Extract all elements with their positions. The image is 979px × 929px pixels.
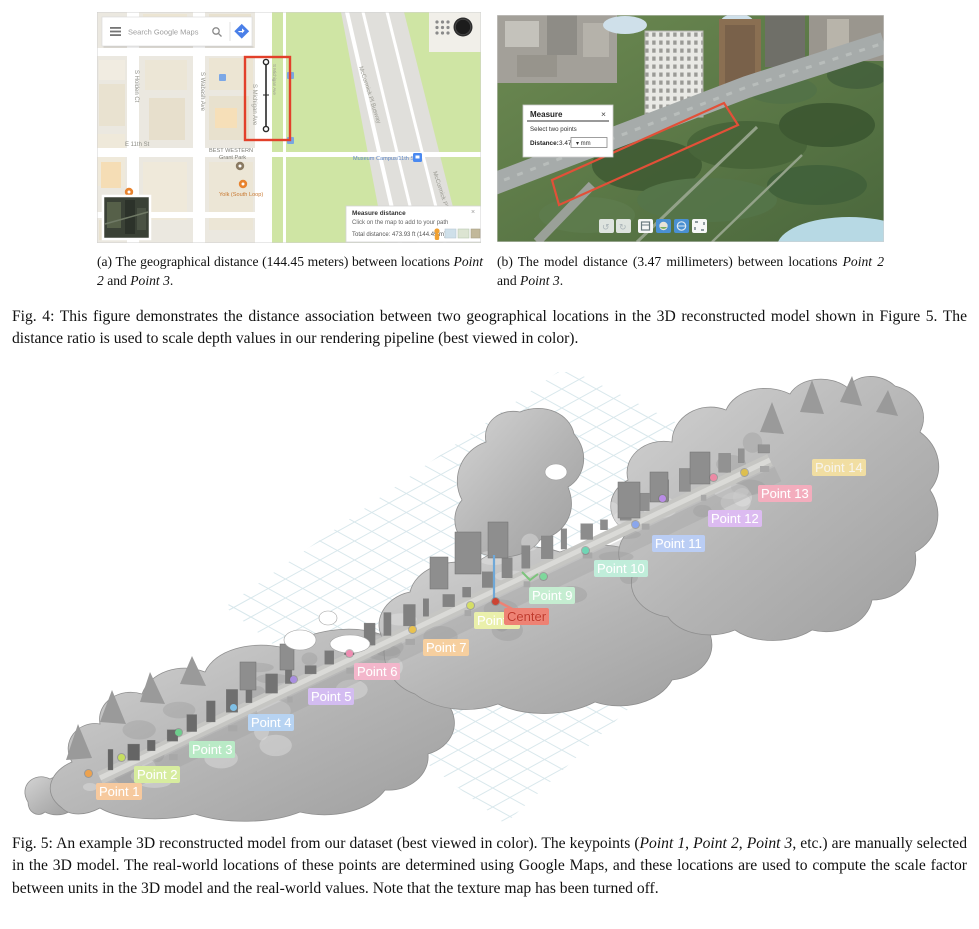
keypoint-dot-point-5 — [290, 676, 297, 683]
measure-dialog: Measure × Select two points Distance: 3.… — [523, 105, 613, 157]
model-viewport: Point 1Point 2Point 3Point 4Point 5Point… — [0, 372, 979, 824]
measure-endpoint-top — [263, 59, 268, 64]
fig4b-model-image: Measure × Select two points Distance: 3.… — [497, 15, 884, 242]
keypoint-dot-point-6 — [346, 650, 353, 657]
hamburger-menu-icon[interactable] — [110, 27, 121, 36]
fig4-caption: Fig. 4: This figure demonstrates the dis… — [12, 306, 967, 351]
reconstructed-mesh — [25, 376, 939, 821]
svg-text:Grant Park: Grant Park — [219, 155, 246, 161]
distance-label: Distance: — [530, 140, 559, 147]
subcaption-a: (a) The geographical distance (144.45 me… — [97, 252, 483, 291]
keypoint-dot-center — [492, 598, 499, 605]
distance-value: 3.47 — [559, 140, 572, 147]
popup-title: Measure distance — [352, 210, 406, 217]
popup-total-distance: Total distance: 473.93 ft (144.45 m) — [352, 232, 446, 238]
svg-text:S Wabash Ave: S Wabash Ave — [199, 72, 205, 112]
keypoint-dot-point-2 — [118, 754, 125, 761]
satellite-thumbnail[interactable] — [103, 196, 150, 239]
keypoint-label-point-1: Point 1 — [96, 783, 142, 800]
map-layer-button — [445, 229, 456, 238]
hotel-label: BEST WESTERN — [209, 148, 253, 154]
unit-value: ▾ mm — [576, 141, 591, 147]
svg-text:↺: ↺ — [602, 222, 610, 232]
keypoint-label-point-2: Point 2 — [134, 766, 180, 783]
avatar[interactable] — [454, 18, 473, 37]
svg-text:E 11th St: E 11th St — [125, 142, 150, 148]
keypoint-label-point-6: Point 6 — [354, 663, 400, 680]
svg-text:S Holden Ct: S Holden Ct — [133, 70, 139, 103]
measure-endpoint-bottom — [263, 126, 268, 131]
restaurant-label: Yolk (South Loop) — [219, 192, 263, 198]
keypoint-label-point-14: Point 14 — [812, 459, 866, 476]
keypoint-dot-point-8 — [467, 602, 474, 609]
keypoint-label-point-12: Point 12 — [708, 510, 762, 527]
close-icon[interactable]: × — [471, 209, 475, 216]
keypoint-label-point-3: Point 3 — [189, 741, 235, 758]
keypoint-label-point-13: Point 13 — [758, 485, 812, 502]
keypoint-label-center: Center — [504, 608, 549, 625]
apps-grid-icon[interactable] — [435, 20, 449, 34]
search-bar[interactable]: Search Google Maps — [102, 17, 254, 48]
subcaption-b: (b) The model distance (3.47 millimeters… — [497, 252, 884, 291]
crop-frame-button — [692, 219, 707, 233]
map-canvas[interactable]: E 9th St E 11th St S Wabash Ave S Holden… — [97, 12, 481, 243]
model-aerial-canvas[interactable]: Measure × Select two points Distance: 3.… — [497, 15, 884, 242]
fig5-caption: Fig. 5: An example 3D reconstructed mode… — [12, 833, 967, 900]
keypoint-dot-point-9 — [540, 573, 547, 580]
keypoint-dot-point-13 — [710, 474, 717, 481]
close-icon[interactable]: × — [601, 109, 606, 119]
search-input[interactable]: Search Google Maps — [128, 28, 199, 37]
keypoint-dot-point-1 — [85, 770, 92, 777]
keypoint-label-point-9: Point 9 — [529, 587, 575, 604]
svg-text:↻: ↻ — [619, 222, 627, 232]
dialog-title: Measure — [530, 110, 563, 119]
earth-button — [471, 229, 480, 238]
svg-text:S Michigan Ave: S Michigan Ave — [251, 84, 257, 126]
keypoint-dot-point-4 — [230, 704, 237, 711]
pegman-icon — [434, 228, 439, 233]
terrain-button — [458, 229, 469, 238]
keypoint-label-point-5: Point 5 — [308, 688, 354, 705]
keypoint-label-point-7: Point 7 — [423, 639, 469, 656]
dialog-subtitle: Select two points — [530, 126, 577, 133]
layers-button — [638, 219, 653, 233]
keypoint-dot-point-3 — [175, 729, 182, 736]
keypoint-label-point-4: Point 4 — [248, 714, 294, 731]
keypoint-dot-point-12 — [659, 495, 666, 502]
keypoint-dot-point-7 — [409, 626, 416, 633]
keypoint-dot-point-11 — [632, 521, 639, 528]
fig4a-map-image: E 9th St E 11th St S Wabash Ave S Holden… — [97, 12, 481, 243]
keypoint-label-point-11: Point 11 — [652, 535, 705, 552]
mesh-canvas[interactable] — [0, 372, 979, 824]
keypoint-dot-point-14 — [741, 469, 748, 476]
svg-text:S Michigan Ave: S Michigan Ave — [272, 64, 277, 95]
station-label: Museum Campus/11th St — [353, 156, 416, 162]
keypoint-label-point-10: Point 10 — [594, 560, 648, 577]
keypoint-dot-point-10 — [582, 547, 589, 554]
popup-line1: Click on the map to add to your path — [352, 220, 448, 226]
